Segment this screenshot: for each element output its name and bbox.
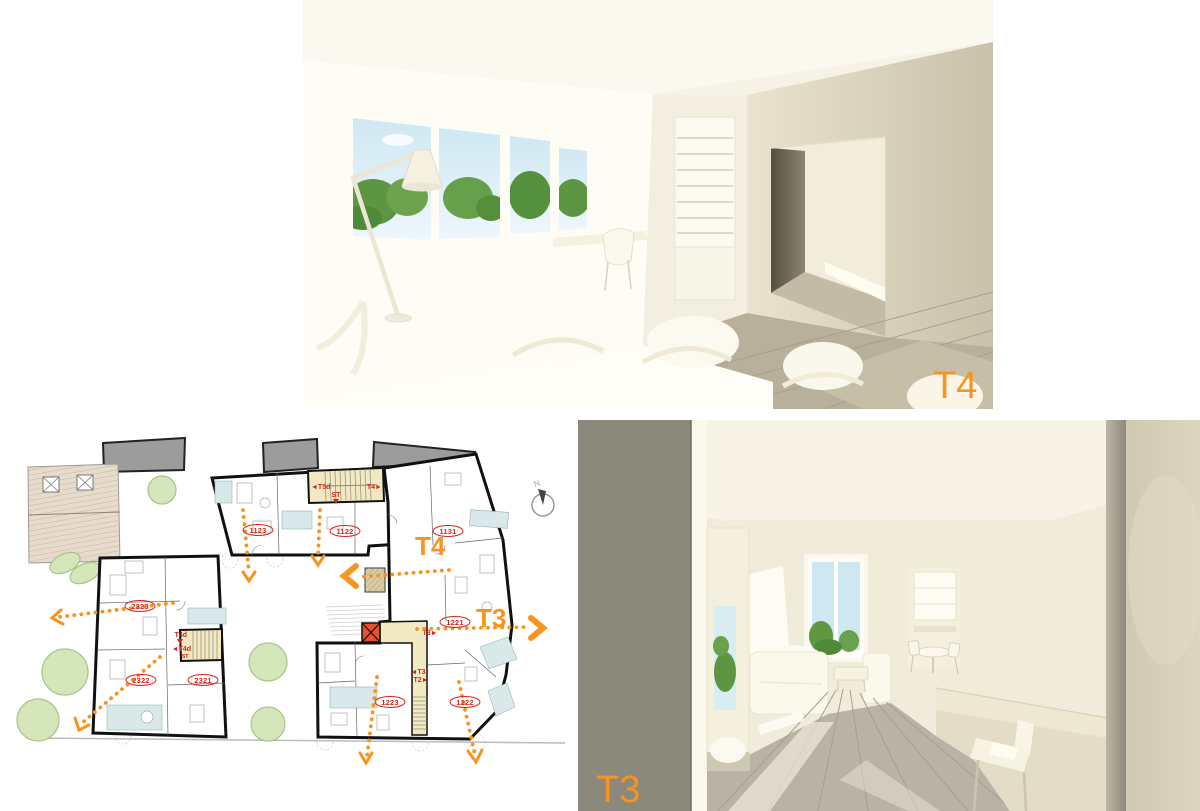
stair3-top-label: T3► [422, 630, 437, 637]
stair1-right-label: T4► [367, 484, 382, 491]
stair1-left-label: ◄T5d [311, 484, 330, 491]
stair3-bottom-label: T2► [413, 677, 428, 684]
right-pillar [1106, 420, 1126, 811]
stair1-st-label: ST [332, 492, 342, 499]
svg-text:1223: 1223 [381, 698, 399, 707]
svg-text:2323: 2323 [131, 602, 149, 611]
t4-entry-vestibule [365, 568, 385, 592]
bookshelf-niche [675, 117, 735, 300]
ground-floor-plan: ◄T5d T4► ST [25, 425, 570, 811]
t3-render-canvas: T3 [578, 420, 1200, 811]
svg-text:1221: 1221 [446, 618, 464, 627]
t4-render-canvas: T4 [303, 0, 993, 409]
svg-text:1122: 1122 [336, 527, 353, 536]
elevator-box [362, 623, 380, 642]
zone-label-t3: T3 [476, 603, 506, 633]
t4-render-tag: T4 [933, 365, 977, 407]
stair2-top-label: T4d [175, 632, 187, 639]
svg-text:2321: 2321 [194, 676, 212, 685]
plan-canvas: ◄T5d T4► ST [25, 425, 570, 811]
svg-text:2322: 2322 [132, 676, 150, 685]
stair2-st-label: ST [181, 654, 189, 660]
stair-core-1: ◄T5d T4► ST [308, 468, 384, 504]
t3-render-tag: T3 [596, 769, 640, 811]
t3-interior-render: T3 [578, 420, 1200, 811]
presentation-board: T4 [0, 0, 1200, 811]
stair3-mid-label: ◄T3 [410, 669, 425, 676]
existing-roof-building [28, 464, 120, 563]
stair2-mid-label: ◄T4d [172, 646, 191, 653]
window-2 [439, 128, 506, 239]
window-4 [556, 148, 590, 230]
north-compass-icon: N [532, 478, 554, 516]
zone-label-t4: T4 [415, 531, 446, 561]
foreground-gray-wall [578, 420, 691, 811]
living-window [804, 554, 868, 662]
t4-interior-render: T4 [303, 0, 993, 409]
window-3 [509, 136, 551, 234]
svg-text:1222: 1222 [456, 698, 474, 707]
svg-text:1123: 1123 [249, 526, 266, 535]
compass-north-label: N [533, 478, 542, 489]
